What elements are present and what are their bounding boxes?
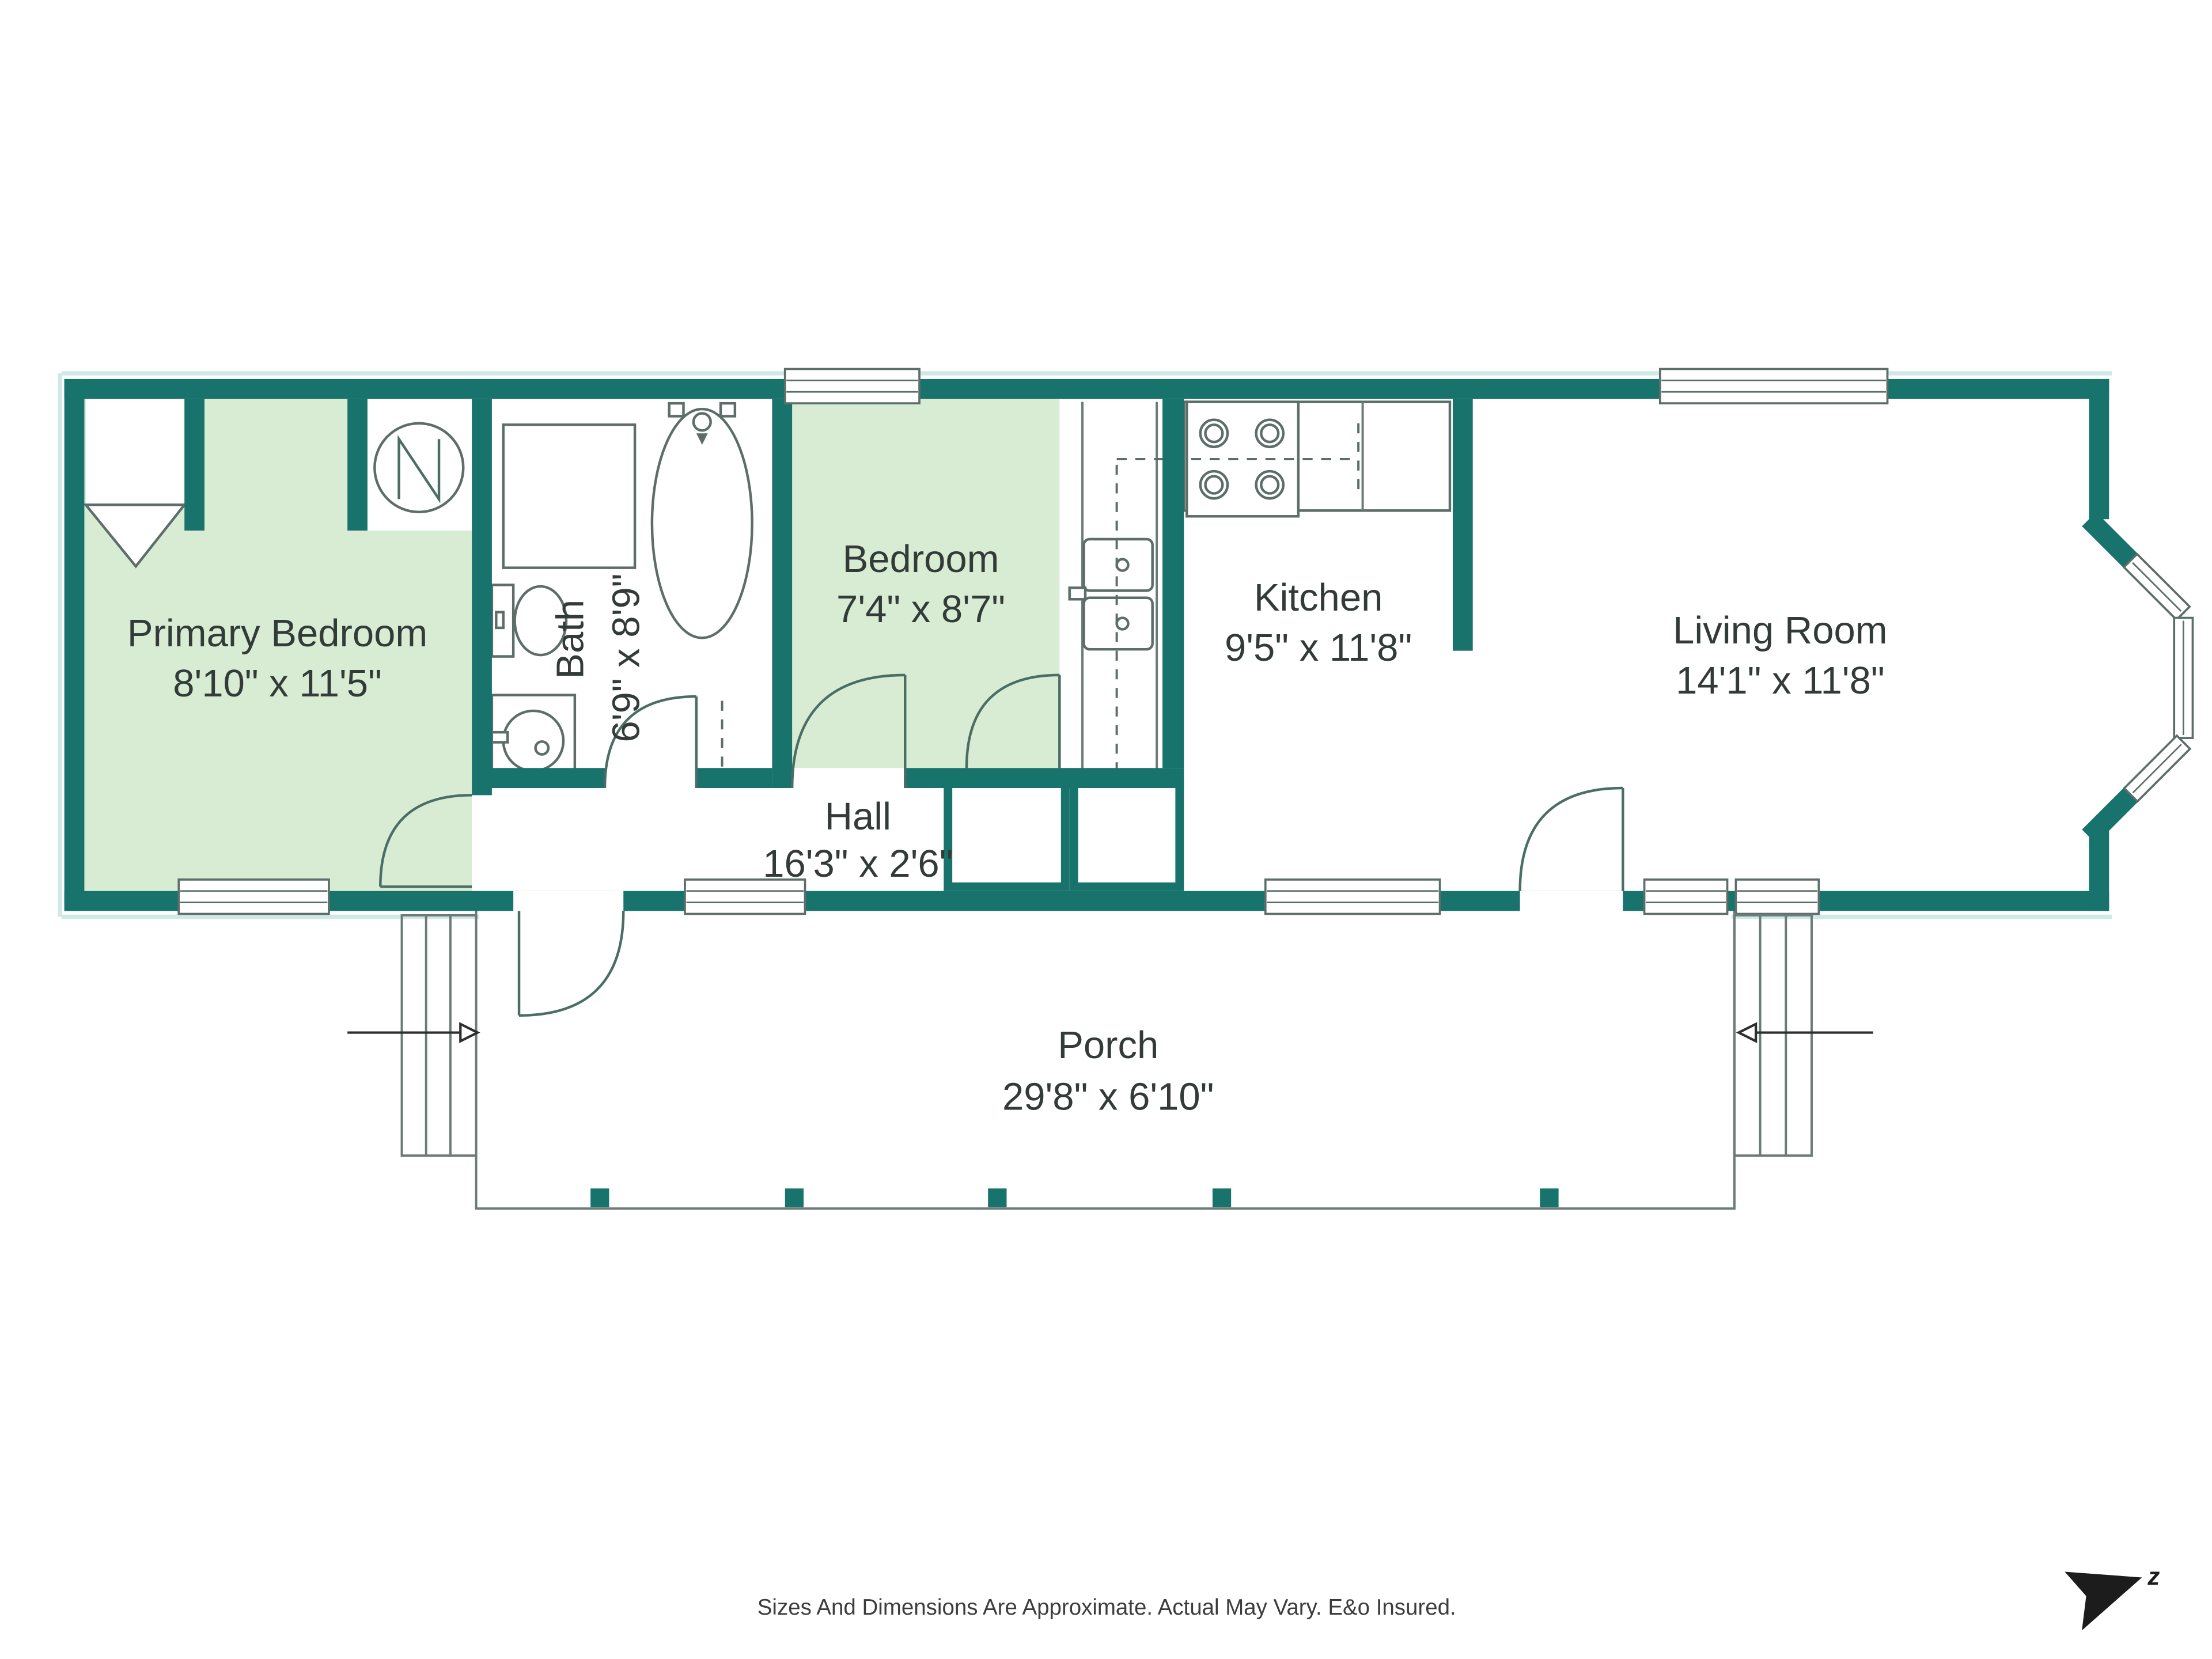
living-door-opening bbox=[1520, 891, 1623, 911]
stairs-right bbox=[1734, 915, 1873, 1156]
porch-post bbox=[1540, 1188, 1558, 1207]
room-dims-living-room: 14'1" x 11'8" bbox=[1676, 659, 1885, 702]
bathtub-icon bbox=[652, 403, 752, 638]
bay-window bbox=[2124, 554, 2192, 801]
room-label-bedroom: Bedroom bbox=[843, 537, 999, 581]
floor-plan-canvas: Primary Bedroom 8'10" x 11'5" Bath 6'9" … bbox=[0, 0, 2212, 1659]
room-label-bath: Bath bbox=[549, 600, 592, 679]
door-living-porch bbox=[1520, 788, 1623, 891]
room-dims-bath: 6'9" x 8'9" bbox=[605, 574, 648, 743]
door-hall-porch bbox=[519, 911, 623, 1016]
bay-wall-top bbox=[2089, 519, 2134, 563]
room-dims-kitchen: 9'5" x 11'8" bbox=[1225, 626, 1412, 669]
room-dims-bedroom: 7'4" x 8'7" bbox=[836, 588, 1005, 631]
room-dims-porch: 29'8" x 6'10" bbox=[1002, 1075, 1214, 1119]
shower-icon bbox=[503, 425, 635, 567]
hall-closet-b bbox=[1078, 788, 1176, 882]
disclaimer-text: Sizes And Dimensions Are Approximate. Ac… bbox=[757, 1595, 1456, 1620]
compass-label: z bbox=[2147, 1563, 2160, 1590]
window-kitchen-bottom bbox=[1266, 880, 1440, 914]
north-arrow-icon: z bbox=[2065, 1563, 2160, 1630]
bedroom-floor bbox=[792, 399, 1059, 768]
room-label-kitchen: Kitchen bbox=[1254, 576, 1383, 619]
room-label-porch: Porch bbox=[1058, 1024, 1158, 1067]
stairs-left bbox=[347, 915, 478, 1156]
bay-wall-bottom bbox=[2089, 792, 2134, 836]
stove-icon bbox=[1187, 402, 1298, 517]
porch-door-opening bbox=[513, 891, 623, 911]
porch-post bbox=[590, 1188, 609, 1207]
room-dims-primary-bedroom: 8'10" x 11'5" bbox=[173, 662, 382, 705]
room-dims-hall: 16'3" x 2'6" bbox=[763, 842, 953, 885]
hall-closet-a bbox=[952, 788, 1061, 882]
room-label-hall: Hall bbox=[825, 795, 891, 838]
arrow-left-icon bbox=[1738, 1024, 1756, 1041]
room-label-primary-bedroom: Primary Bedroom bbox=[127, 612, 427, 655]
porch-post bbox=[988, 1188, 1006, 1207]
porch-post bbox=[1213, 1188, 1231, 1207]
water-heater-niche bbox=[368, 399, 472, 531]
room-label-living-room: Living Room bbox=[1673, 609, 1887, 652]
window-living-top bbox=[1660, 369, 1888, 404]
window-bedroom-top bbox=[785, 369, 919, 404]
window-primary-bottom bbox=[179, 880, 329, 914]
arrow-right-icon bbox=[460, 1024, 478, 1041]
porch-post bbox=[785, 1188, 804, 1207]
